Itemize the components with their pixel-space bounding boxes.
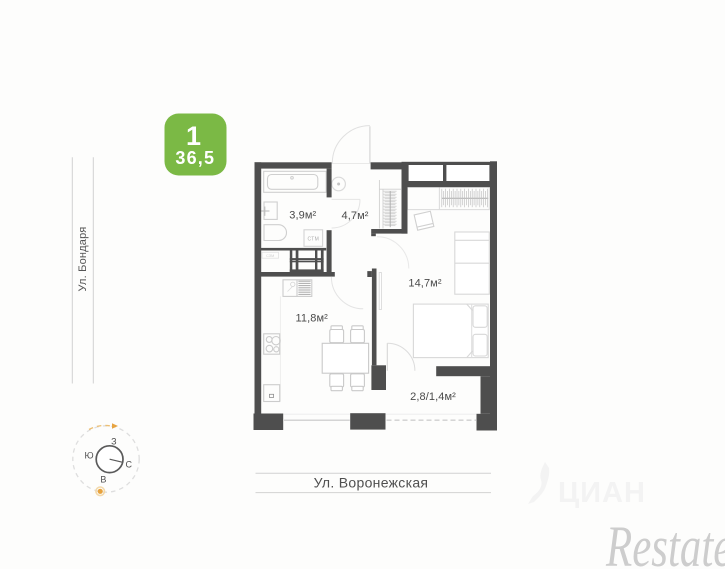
- svg-text:Ул. Бондаря: Ул. Бондаря: [77, 227, 89, 292]
- svg-text:СТМ: СТМ: [308, 237, 320, 243]
- svg-text:11,8м²: 11,8м²: [295, 312, 328, 324]
- svg-text:2,8/1,4м²: 2,8/1,4м²: [410, 391, 456, 403]
- svg-text:З: З: [111, 436, 116, 446]
- svg-text:ЦИАН: ЦИАН: [558, 477, 646, 509]
- svg-text:Ул. Воронежская: Ул. Воронежская: [314, 475, 429, 491]
- svg-text:1: 1: [186, 121, 201, 151]
- svg-text:14,7м²: 14,7м²: [408, 277, 441, 289]
- svg-text:3,9м²: 3,9м²: [289, 209, 316, 221]
- svg-text:36,5: 36,5: [175, 148, 215, 168]
- svg-text:Restate: Restate: [605, 516, 725, 569]
- svg-text:4,7м²: 4,7м²: [341, 210, 368, 222]
- svg-text:Ю: Ю: [84, 451, 93, 461]
- svg-text:СЗМ: СЗМ: [266, 254, 274, 258]
- svg-text:В: В: [100, 474, 106, 484]
- svg-text:С: С: [126, 459, 133, 469]
